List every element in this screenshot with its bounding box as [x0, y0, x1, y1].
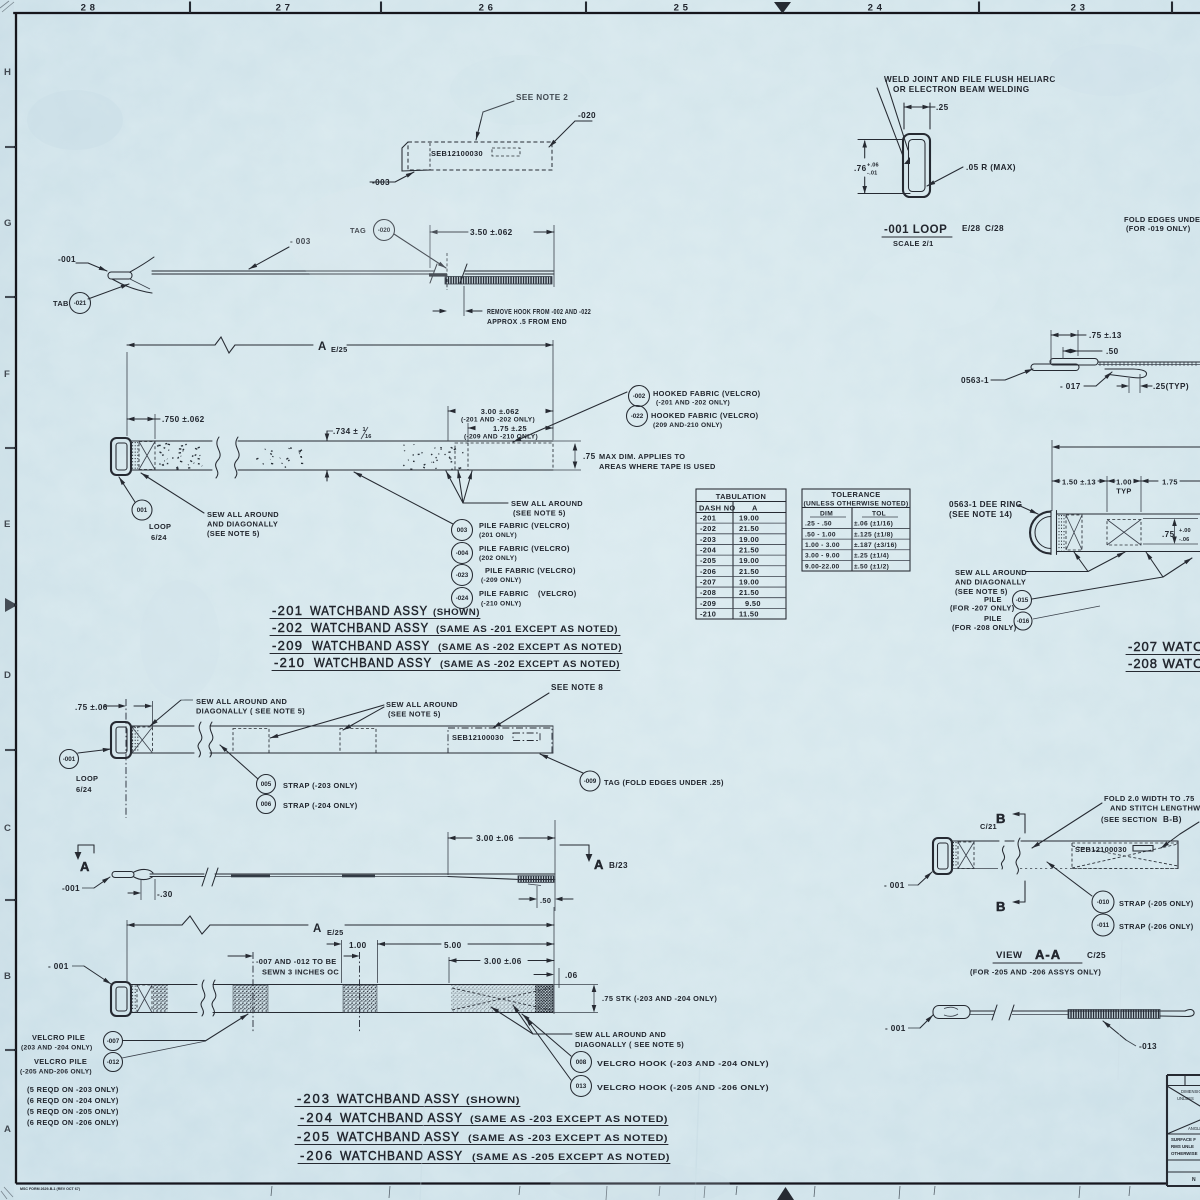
svg-text:19.00: 19.00: [739, 535, 759, 544]
svg-text:-001: -001: [62, 884, 80, 893]
svg-text:LOOP: LOOP: [76, 774, 98, 783]
svg-text:6/24: 6/24: [151, 533, 167, 542]
svg-text:PILE FABRIC (VELCRO): PILE FABRIC (VELCRO): [485, 566, 576, 575]
svg-text:-205: -205: [297, 1129, 330, 1144]
svg-text:TABULATION: TABULATION: [716, 492, 766, 501]
svg-text:-208 WATCHBAND: -208 WATCHBAND: [1128, 656, 1200, 671]
svg-text:006: 006: [261, 801, 272, 808]
svg-text:0563-1: 0563-1: [961, 376, 989, 385]
svg-text:(UNLESS OTHERWISE NOTED): (UNLESS OTHERWISE NOTED): [804, 501, 909, 508]
svg-text:-203: -203: [700, 535, 716, 544]
svg-text:(SAME AS -202 EXCEPT AS NOTED): (SAME AS -202 EXCEPT AS NOTED): [440, 659, 620, 670]
svg-text:VIEW: VIEW: [996, 950, 1023, 961]
svg-text:B: B: [996, 811, 1006, 826]
svg-text:SEW ALL AROUND AND: SEW ALL AROUND AND: [196, 697, 287, 706]
svg-text:-.01: -.01: [867, 171, 877, 177]
svg-text:SURFACE F: SURFACE F: [1171, 1137, 1196, 1142]
svg-text:1.75: 1.75: [1162, 478, 1178, 487]
svg-text:(5 REQD ON -203 ONLY): (5 REQD ON -203 ONLY): [27, 1085, 119, 1094]
svg-text:2 7: 2 7: [276, 3, 291, 14]
svg-text:SEB12100030: SEB12100030: [431, 149, 483, 158]
svg-text:(-205 AND-206 ONLY): (-205 AND-206 ONLY): [20, 1069, 92, 1076]
svg-text:001: 001: [137, 507, 148, 514]
svg-text:3.00 ±.062: 3.00 ±.062: [481, 407, 519, 416]
svg-text:C/21: C/21: [980, 822, 997, 831]
svg-text:STRAP (-206 ONLY): STRAP (-206 ONLY): [1119, 922, 1194, 931]
svg-text:21.50: 21.50: [739, 588, 759, 597]
svg-text:(-201 AND -202 ONLY): (-201 AND -202 ONLY): [656, 400, 730, 407]
svg-text:(6 REQD ON -204 ONLY): (6 REQD ON -204 ONLY): [27, 1096, 119, 1105]
svg-text:-210: -210: [700, 609, 716, 618]
svg-text:-204: -204: [300, 1110, 333, 1125]
svg-text:±.187 (±3/16): ±.187 (±3/16): [854, 542, 897, 549]
svg-text:(FOR -205 AND -206 ASSYS ON: (FOR -205 AND -206 ASSYS ONLY): [970, 968, 1101, 977]
svg-text:(SAME AS -201 EXCEPT AS NOTED): (SAME AS -201 EXCEPT AS NOTED): [436, 624, 618, 635]
svg-text:.75 ±.13: .75 ±.13: [1089, 331, 1122, 340]
svg-text:21.50: 21.50: [739, 567, 759, 576]
svg-text:A: A: [313, 923, 322, 935]
svg-text:A: A: [752, 504, 758, 513]
svg-text:SCALE 2/1: SCALE 2/1: [893, 239, 934, 248]
svg-text:-.06: -.06: [1179, 537, 1189, 543]
svg-text:-206: -206: [300, 1148, 333, 1163]
svg-text:.50 - 1.00: .50 - 1.00: [805, 531, 836, 538]
svg-text:AND STITCH LENGTHWISE: AND STITCH LENGTHWISE: [1110, 804, 1200, 813]
svg-text:013: 013: [576, 1083, 587, 1090]
svg-text:19.00: 19.00: [739, 556, 759, 565]
svg-text:DIAGONALLY ( SEE NOTE 5): DIAGONALLY ( SEE NOTE 5): [196, 707, 305, 716]
svg-text:C/25: C/25: [1087, 951, 1106, 960]
svg-text:PILE: PILE: [984, 614, 1002, 623]
svg-text:(SEE NOTE 14): (SEE NOTE 14): [949, 510, 1012, 519]
svg-text:B-B): B-B): [1163, 815, 1182, 824]
svg-text:-020: -020: [578, 111, 596, 120]
svg-text:.50: .50: [540, 896, 551, 905]
svg-text:AND DIAGONALLY: AND DIAGONALLY: [955, 578, 1026, 587]
svg-text:(FOR -208 ONLY): (FOR -208 ONLY): [952, 623, 1017, 632]
svg-text:MAX DIM. APPLIES TO: MAX DIM. APPLIES TO: [599, 452, 685, 461]
svg-text:(SEE NOTE 5): (SEE NOTE 5): [513, 509, 566, 518]
svg-text:WATCHBAND ASSY: WATCHBAND ASSY: [337, 1091, 460, 1106]
svg-text:-204: -204: [700, 546, 717, 555]
svg-text:WATCHBAND ASSY: WATCHBAND ASSY: [340, 1110, 463, 1125]
svg-text:-009: -009: [584, 778, 597, 785]
svg-text:DIM: DIM: [820, 511, 833, 518]
svg-text:.25(TYP): .25(TYP): [1153, 382, 1189, 391]
svg-text:E/28: E/28: [962, 224, 980, 233]
svg-text:SEW ALL AROUND AND: SEW ALL AROUND AND: [575, 1030, 666, 1039]
svg-text:(-209 AND -210 ONLY): (-209 AND -210 ONLY): [464, 434, 538, 441]
svg-text:1.00: 1.00: [1116, 478, 1132, 487]
svg-text:.75: .75: [1162, 530, 1175, 539]
svg-text:.734 ±: .734 ±: [333, 427, 358, 436]
svg-text:- 017: - 017: [1060, 382, 1081, 391]
svg-text:WATCHBAND ASSY: WATCHBAND ASSY: [310, 603, 428, 618]
svg-text:SEE NOTE 8: SEE NOTE 8: [551, 683, 603, 692]
svg-text:WATCHBAND ASSY: WATCHBAND ASSY: [311, 620, 429, 635]
svg-text:OTHERWISE: OTHERWISE: [1171, 1151, 1198, 1156]
svg-text:TYP: TYP: [1116, 487, 1131, 496]
svg-text:±.50 (±1/2): ±.50 (±1/2): [854, 563, 889, 570]
svg-text:3.50 ±.062: 3.50 ±.062: [470, 228, 513, 237]
svg-text:-015: -015: [1016, 597, 1029, 604]
svg-text:19.00: 19.00: [739, 577, 759, 586]
svg-text:TAG (FOLD EDGES UNDER .25): TAG (FOLD EDGES UNDER .25): [604, 778, 724, 787]
svg-text:TOLERANCE: TOLERANCE: [831, 490, 880, 499]
svg-text:-207: -207: [700, 577, 716, 586]
svg-text:3.00 - 9.00: 3.00 - 9.00: [805, 553, 840, 560]
svg-text:SEW ALL AROUND: SEW ALL AROUND: [955, 568, 1027, 577]
svg-text:(FOR -019 ONLY): (FOR -019 ONLY): [1126, 224, 1191, 233]
svg-text:DIAGONALLY ( SEE NOTE 5): DIAGONALLY ( SEE NOTE 5): [575, 1040, 684, 1049]
svg-text:(SAME AS -203 EXCEPT AS NOTED): (SAME AS -203 EXCEPT AS NOTED): [470, 1114, 668, 1125]
svg-text:UNLESS: UNLESS: [1177, 1096, 1194, 1101]
svg-text:- 001: - 001: [48, 962, 69, 971]
svg-text:16: 16: [365, 434, 372, 440]
svg-text:(201 ONLY): (201 ONLY): [479, 532, 517, 539]
svg-text:A-A: A-A: [1035, 947, 1061, 962]
svg-text:- 001: - 001: [885, 1024, 906, 1033]
svg-text:(SEE SECTION: (SEE SECTION: [1101, 815, 1157, 824]
svg-text:.76: .76: [854, 164, 867, 173]
svg-text:003: 003: [457, 527, 468, 534]
svg-text:-209: -209: [272, 638, 303, 653]
svg-text:(SHOWN): (SHOWN): [466, 1095, 520, 1106]
svg-text:WATCHBAND ASSY: WATCHBAND ASSY: [340, 1148, 463, 1163]
svg-text:DIMENSIO: DIMENSIO: [1181, 1089, 1200, 1094]
svg-text:-203: -203: [297, 1091, 330, 1106]
svg-text:LOOP: LOOP: [149, 522, 171, 531]
svg-text:(SEE NOTE 5): (SEE NOTE 5): [207, 529, 260, 538]
svg-text:A: A: [80, 859, 90, 874]
svg-text:.50: .50: [1106, 347, 1119, 356]
svg-text:-023: -023: [456, 572, 469, 579]
svg-text:.25 - .50: .25 - .50: [805, 521, 832, 528]
svg-text:(5 REQD ON -205 ONLY): (5 REQD ON -205 ONLY): [27, 1107, 119, 1116]
svg-text:-004: -004: [456, 550, 469, 557]
svg-text:(SEE NOTE 5): (SEE NOTE 5): [388, 710, 441, 719]
svg-text:E/25: E/25: [327, 928, 344, 937]
svg-text:-201: -201: [700, 514, 716, 523]
svg-text:+.06: +.06: [867, 163, 879, 169]
svg-text:HOOKED FABRIC (VELCRO): HOOKED FABRIC (VELCRO): [651, 411, 759, 420]
svg-text:(SAME AS -202 EXCEPT AS NOTED): (SAME AS -202 EXCEPT AS NOTED): [438, 642, 622, 653]
svg-text:A: A: [318, 341, 327, 353]
svg-text:1.00: 1.00: [349, 941, 367, 950]
svg-text:(SAME AS -205 EXCEPT AS NOTED): (SAME AS -205 EXCEPT AS NOTED): [472, 1152, 670, 1163]
svg-text:-209: -209: [700, 599, 716, 608]
svg-text:VELCRO PILE: VELCRO PILE: [32, 1033, 85, 1042]
svg-text:-202: -202: [700, 524, 716, 533]
svg-text:(-210 ONLY): (-210 ONLY): [481, 601, 521, 608]
svg-text:HOOKED FABRIC (VELCRO): HOOKED FABRIC (VELCRO): [653, 389, 761, 398]
svg-text:1.00 - 3.00: 1.00 - 3.00: [805, 542, 840, 549]
svg-text:-205: -205: [700, 556, 716, 565]
svg-text:(202 ONLY): (202 ONLY): [479, 555, 517, 562]
svg-text:-001 LOOP: -001 LOOP: [884, 224, 947, 236]
svg-text:19.00: 19.00: [739, 514, 759, 523]
svg-text:-210: -210: [274, 655, 305, 670]
svg-text:-201: -201: [272, 603, 303, 618]
svg-text:(FOR -207 ONLY): (FOR -207 ONLY): [950, 604, 1015, 613]
svg-text:SEB12100030: SEB12100030: [1075, 845, 1127, 854]
svg-text:FOLD EDGES UNDER: FOLD EDGES UNDER: [1124, 215, 1200, 224]
svg-text:E/25: E/25: [331, 345, 348, 354]
svg-text:VELCRO PILE: VELCRO PILE: [34, 1057, 87, 1066]
svg-text:+.00: +.00: [1179, 528, 1191, 534]
svg-text:WATCHBAND ASSY: WATCHBAND ASSY: [337, 1129, 460, 1144]
svg-text:2 6: 2 6: [479, 3, 494, 14]
svg-text:3.00 ±.06: 3.00 ±.06: [476, 834, 514, 843]
svg-text:RMS UNLE: RMS UNLE: [1171, 1144, 1194, 1149]
svg-text:.75 STK (-203 AND -204 ONLY): .75 STK (-203 AND -204 ONLY): [602, 994, 717, 1003]
svg-text:PILE FABRIC (VELCRO): PILE FABRIC (VELCRO): [479, 521, 570, 530]
svg-text:-208: -208: [700, 588, 716, 597]
svg-text:FOLD 2.0 WIDTH TO .75: FOLD 2.0 WIDTH TO .75: [1104, 794, 1195, 803]
svg-text:-012: -012: [107, 1059, 120, 1066]
svg-text:.75: .75: [583, 452, 596, 461]
svg-text:-010: -010: [1097, 899, 1110, 906]
svg-text:(VELCRO): (VELCRO): [538, 589, 577, 598]
svg-text:11.50: 11.50: [739, 609, 759, 618]
svg-text:- 001: - 001: [884, 881, 905, 890]
svg-text:AREAS WHERE TAPE IS USED: AREAS WHERE TAPE IS USED: [599, 462, 716, 471]
svg-text:WELD JOINT AND FILE FLUSH HELI: WELD JOINT AND FILE FLUSH HELIARC: [884, 75, 1056, 84]
svg-text:PILE FABRIC (VELCRO): PILE FABRIC (VELCRO): [479, 544, 570, 553]
svg-text:SEW ALL AROUND: SEW ALL AROUND: [511, 499, 583, 508]
svg-text:(SHOWN): (SHOWN): [433, 607, 480, 618]
svg-text:-202: -202: [272, 620, 303, 635]
svg-text:WATCHBAND ASSY: WATCHBAND ASSY: [314, 655, 432, 670]
svg-text:SEWN 3 INCHES OC: SEWN 3 INCHES OC: [262, 968, 339, 977]
svg-text:VELCRO HOOK (-205 AND -206: VELCRO HOOK (-205 AND -206 ONLY): [597, 1083, 769, 1092]
svg-text:-024: -024: [456, 595, 469, 602]
svg-text:APPROX .5 FROM END: APPROX .5 FROM END: [487, 317, 567, 326]
svg-text:(SAME AS -203 EXCEPT AS NOTED): (SAME AS -203 EXCEPT AS NOTED): [468, 1133, 668, 1144]
svg-text:N: N: [1192, 1177, 1196, 1183]
svg-text:STRAP (-205 ONLY): STRAP (-205 ONLY): [1119, 899, 1194, 908]
svg-text:.750 ±.062: .750 ±.062: [162, 415, 205, 424]
svg-text:B/23: B/23: [609, 861, 628, 870]
svg-text:(6 REQD ON -206 ONLY): (6 REQD ON -206 ONLY): [27, 1118, 119, 1127]
svg-text:2 8: 2 8: [81, 3, 96, 14]
svg-text:9.50: 9.50: [745, 599, 761, 608]
svg-text:.75 ±.06: .75 ±.06: [75, 703, 108, 712]
svg-text:-001: -001: [58, 255, 76, 264]
svg-text:±.06 (±1/16): ±.06 (±1/16): [854, 521, 893, 528]
svg-text:9.00-22.00: 9.00-22.00: [805, 563, 840, 570]
svg-text:SEW ALL AROUND: SEW ALL AROUND: [386, 700, 458, 709]
svg-text:B: B: [996, 899, 1006, 914]
svg-text:2 4: 2 4: [868, 3, 883, 14]
svg-text:SEW ALL AROUND: SEW ALL AROUND: [207, 510, 279, 519]
svg-text:AND DIAGONALLY: AND DIAGONALLY: [207, 520, 278, 529]
svg-text:-021: -021: [74, 300, 87, 307]
svg-text:(209 AND-210 ONLY): (209 AND-210 ONLY): [653, 422, 722, 429]
svg-text:1.75 ±.25: 1.75 ±.25: [493, 424, 527, 433]
svg-text:-206: -206: [700, 567, 716, 576]
svg-text:(-201 AND -202 ONLY): (-201 AND -202 ONLY): [461, 417, 535, 424]
svg-text:-011: -011: [1097, 922, 1110, 929]
svg-text:OR ELECTRON BEAM WELDING: OR ELECTRON BEAM WELDING: [893, 85, 1030, 94]
svg-text:C/28: C/28: [985, 224, 1004, 233]
svg-text:21.50: 21.50: [739, 546, 759, 555]
svg-text:WATCHBAND ASSY: WATCHBAND ASSY: [312, 638, 430, 653]
svg-text:±.25 (±1/4): ±.25 (±1/4): [854, 553, 889, 560]
svg-text:-207 WATCHBAND: -207 WATCHBAND: [1128, 639, 1200, 654]
svg-text:(-209 ONLY): (-209 ONLY): [481, 577, 521, 584]
svg-text:6/24: 6/24: [76, 785, 92, 794]
svg-text:008: 008: [576, 1059, 587, 1066]
svg-text:REMOVE HOOK FROM -002 AND: REMOVE HOOK FROM -002 AND -022: [487, 307, 591, 316]
svg-text:TOL: TOL: [872, 511, 886, 518]
svg-text:STRAP (-204 ONLY): STRAP (-204 ONLY): [283, 801, 358, 810]
svg-text:ANGLE: ANGLE: [1188, 1126, 1200, 1131]
svg-text:-013: -013: [1139, 1042, 1157, 1051]
svg-text:3.00 ±.06: 3.00 ±.06: [484, 957, 522, 966]
svg-text:TAB: TAB: [53, 299, 69, 308]
svg-text:2 3: 2 3: [1071, 3, 1086, 14]
svg-text:2 5: 2 5: [674, 3, 689, 14]
svg-text:±.125 (±1/8): ±.125 (±1/8): [854, 531, 893, 538]
svg-text:21.50: 21.50: [739, 524, 759, 533]
svg-text:-001: -001: [63, 756, 76, 763]
svg-text:-007: -007: [107, 1038, 120, 1045]
svg-text:STRAP (-203 ONLY): STRAP (-203 ONLY): [283, 781, 358, 790]
svg-text:.05 R (MAX): .05 R (MAX): [966, 163, 1016, 172]
svg-text:5.00: 5.00: [444, 941, 462, 950]
svg-text:A: A: [594, 857, 604, 872]
svg-text:-007 AND -012 TO BE: -007 AND -012 TO BE: [256, 957, 337, 966]
svg-text:-016: -016: [1017, 618, 1030, 625]
svg-text:MSC FORM 2629-B-1 (REV OCT 67): MSC FORM 2629-B-1 (REV OCT 67): [20, 1187, 81, 1191]
svg-text:(203 AND -204 ONLY): (203 AND -204 ONLY): [21, 1045, 93, 1052]
svg-text:0563-1 DEE RING: 0563-1 DEE RING: [949, 500, 1022, 509]
svg-text:.06: .06: [565, 971, 578, 980]
svg-text:005: 005: [261, 781, 272, 788]
svg-text:-022: -022: [631, 413, 644, 420]
svg-text:1.50 ±.13: 1.50 ±.13: [1062, 478, 1096, 487]
svg-text:-.30: -.30: [157, 890, 173, 899]
svg-text:.25: .25: [936, 103, 949, 112]
svg-text:DASH NO: DASH NO: [699, 504, 736, 513]
svg-text:-002: -002: [633, 393, 646, 400]
svg-text:PILE FABRIC: PILE FABRIC: [479, 589, 529, 598]
svg-text:VELCRO HOOK (-203 AND -204: VELCRO HOOK (-203 AND -204 ONLY): [597, 1059, 769, 1068]
svg-text:SEB12100030: SEB12100030: [452, 733, 504, 742]
